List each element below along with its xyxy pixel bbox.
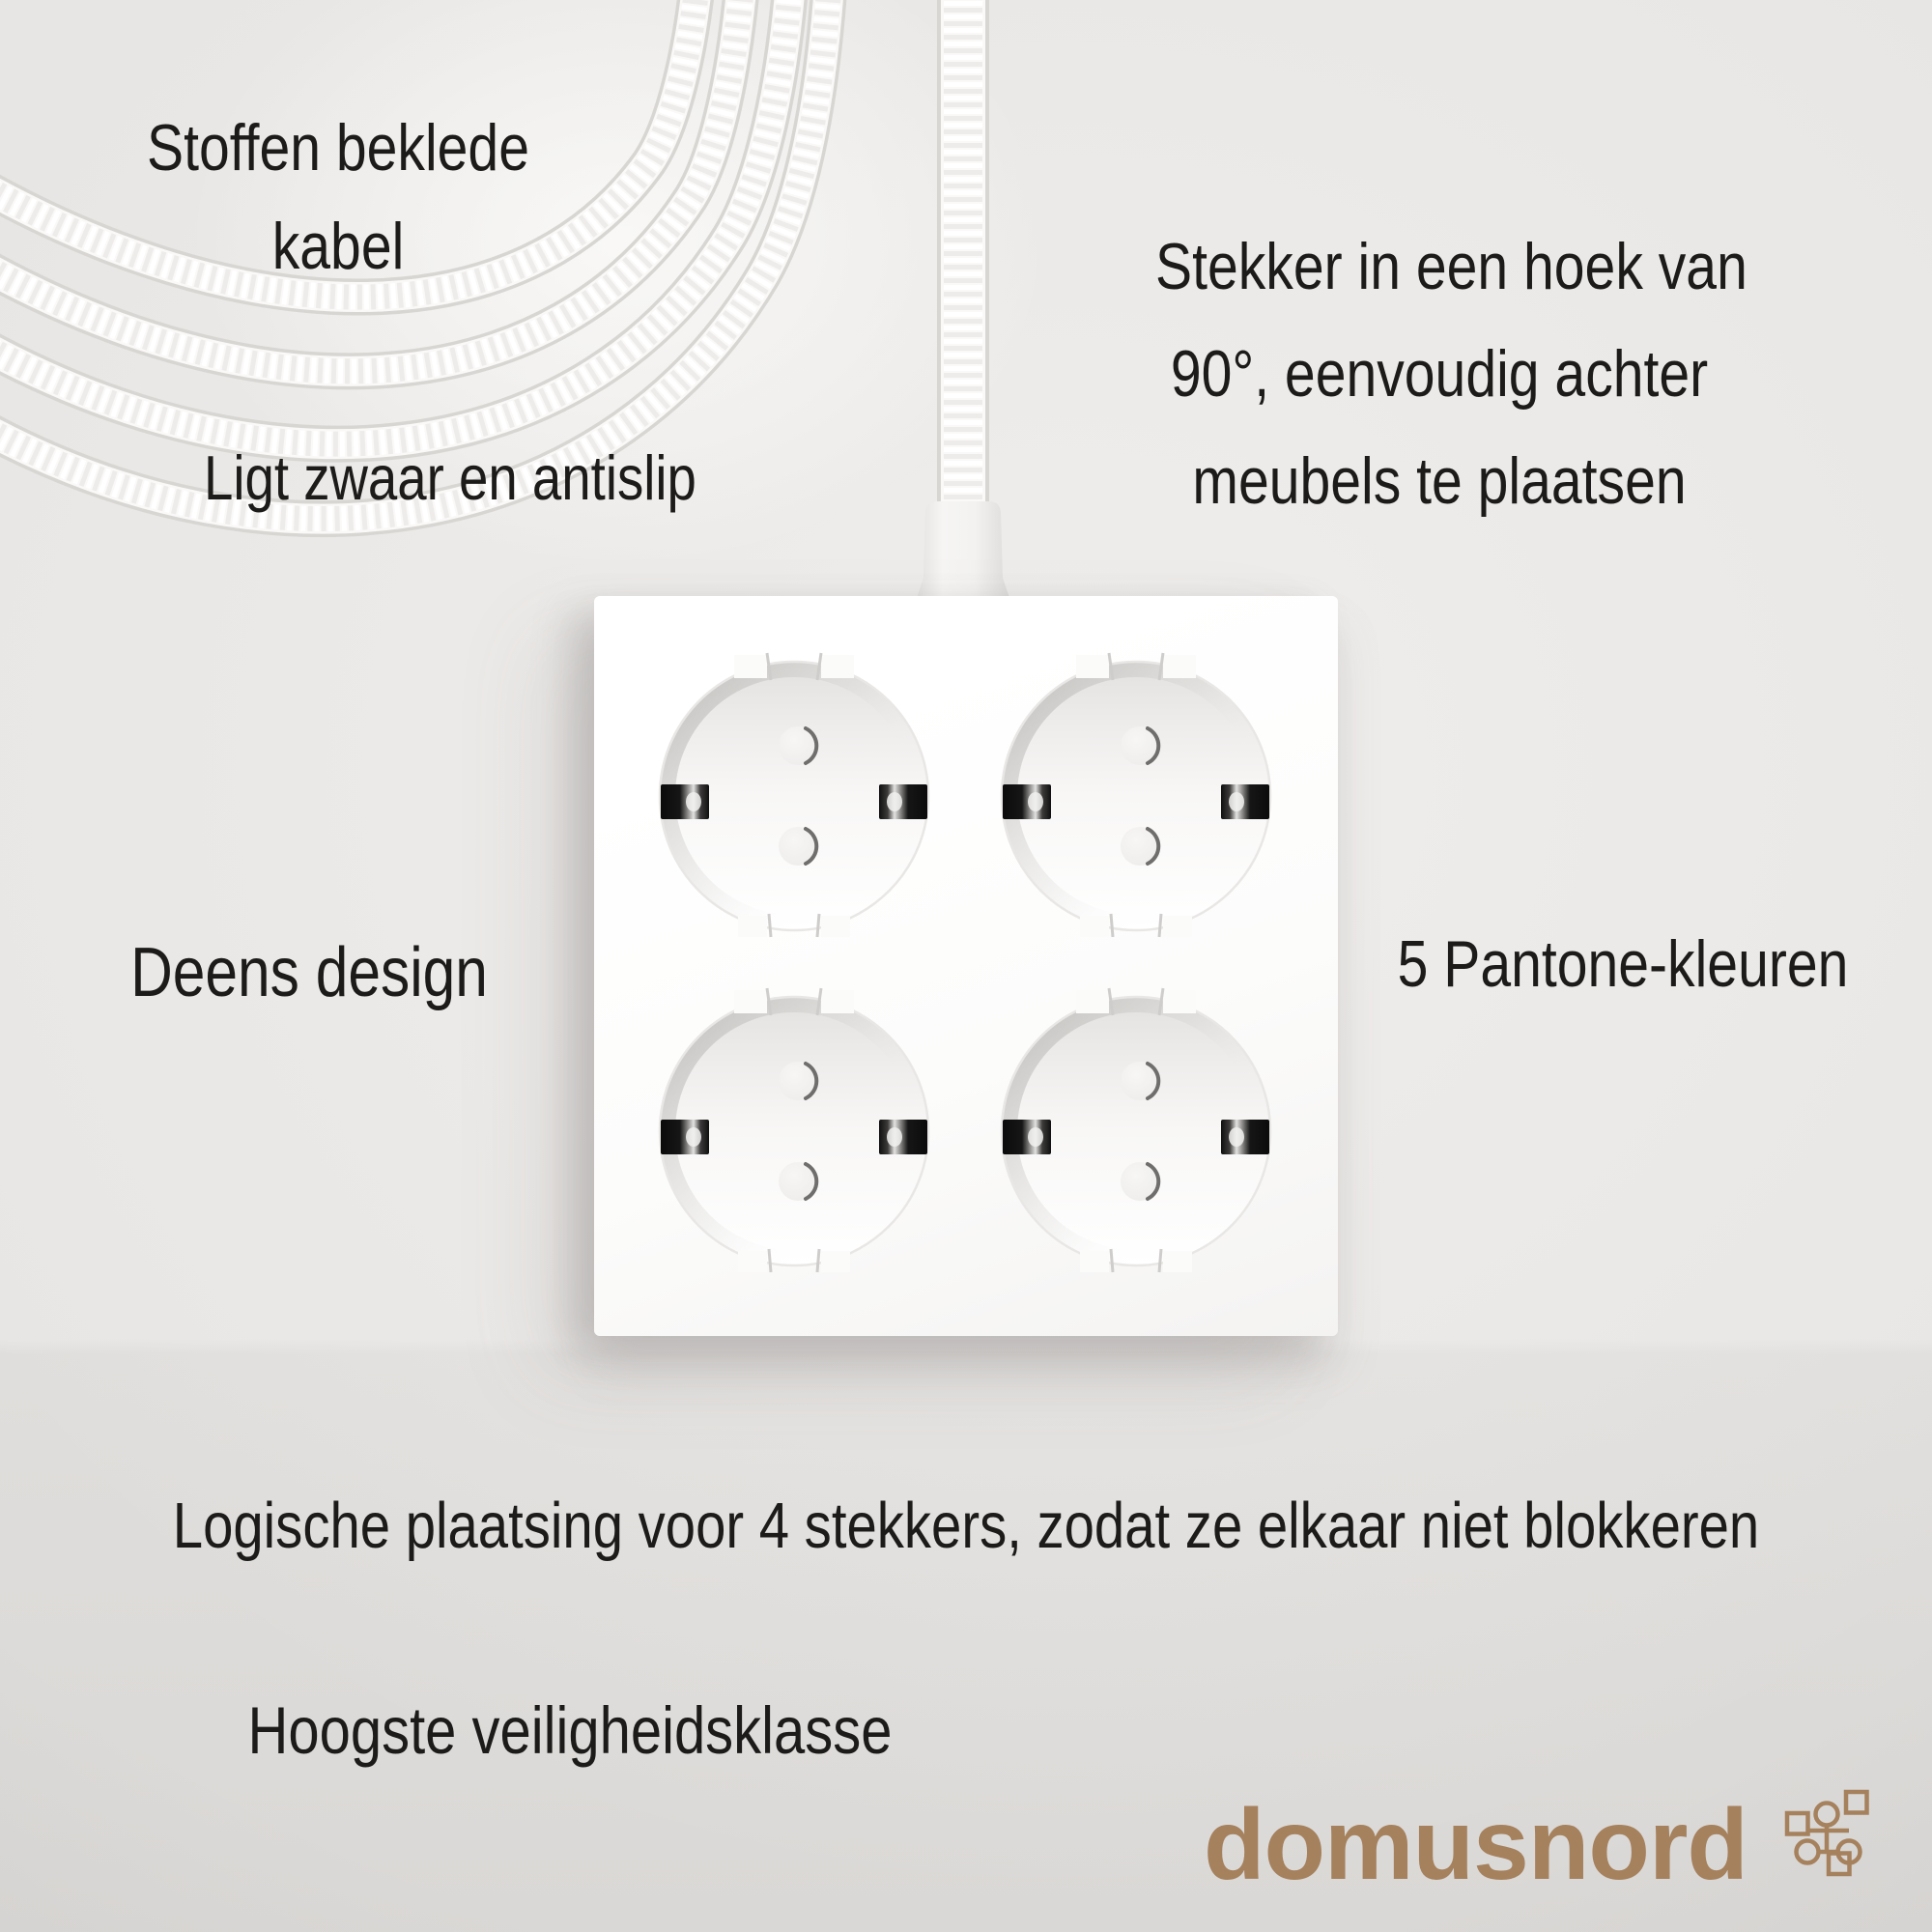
product-photo: Stoffen beklede kabel Stekker in een hoe… [0, 0, 1932, 1932]
caption-fabric-cable: Stoffen beklede kabel [87, 99, 590, 296]
caption-safety-class: Hoogste veiligheidsklasse [164, 1695, 976, 1767]
caption-heavy-antislip: Ligt zwaar en antislip [204, 444, 691, 512]
caption-line: 90°, eenvoudig achter [1155, 321, 1723, 428]
brand-mark-icon [1784, 1789, 1873, 1880]
caption-line: kabel [87, 197, 590, 296]
caption-angled-plug: Stekker in een hoek van 90°, eenvoudig a… [1155, 213, 1723, 535]
socket-top-left [660, 653, 928, 937]
cable-gland [916, 501, 1010, 601]
caption-pantone-colors: 5 Pantone-kleuren [1379, 929, 1866, 999]
socket-top-right [1002, 653, 1270, 937]
caption-line: Stoffen beklede [87, 99, 590, 197]
caption-danish-design: Deens design [66, 936, 553, 1009]
caption-line: Stekker in een hoek van [1155, 213, 1723, 321]
brand-logo: domusnord [1204, 1795, 1747, 1895]
caption-logical-placement: Logische plaatsing voor 4 stekkers, zoda… [155, 1492, 1777, 1561]
brand-wordmark: domusnord [1204, 1795, 1747, 1895]
caption-line: meubels te plaatsen [1155, 428, 1723, 535]
socket-bottom-left [660, 988, 928, 1272]
power-strip [594, 596, 1338, 1336]
socket-bottom-right [1002, 988, 1270, 1272]
